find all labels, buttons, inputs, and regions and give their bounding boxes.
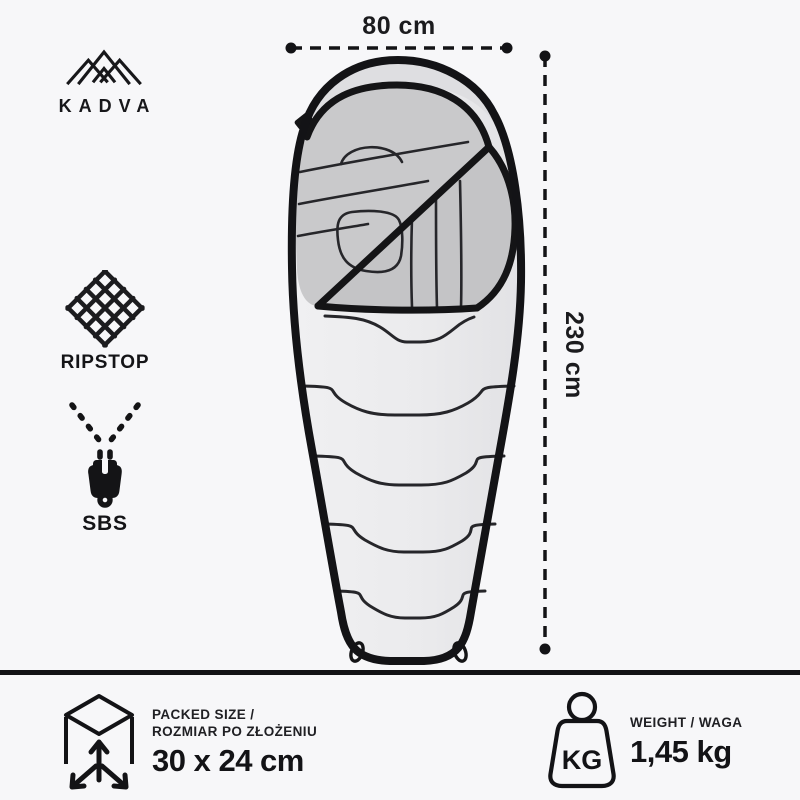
section-divider — [0, 670, 800, 675]
weight-title: WEIGHT / WAGA — [630, 714, 742, 731]
packed-cube-icon — [58, 690, 140, 794]
weight-value: 1,45 kg — [630, 734, 742, 770]
packed-size-block: PACKED SIZE / ROZMIAR PO ZŁOŻENIU 30 x 2… — [58, 690, 317, 794]
kg-weight-icon: KG — [546, 690, 618, 794]
sleeping-bag-illustration — [0, 0, 800, 800]
packed-size-value: 30 x 24 cm — [152, 743, 317, 779]
width-dimension-line — [286, 43, 513, 54]
packed-size-title-pl: ROZMIAR PO ZŁOŻENIU — [152, 723, 317, 740]
weight-block: KG WEIGHT / WAGA 1,45 kg — [546, 690, 742, 794]
length-dimension-line — [540, 51, 551, 655]
kg-unit-label: KG — [562, 745, 603, 775]
packed-size-title-en: PACKED SIZE / — [152, 706, 317, 723]
